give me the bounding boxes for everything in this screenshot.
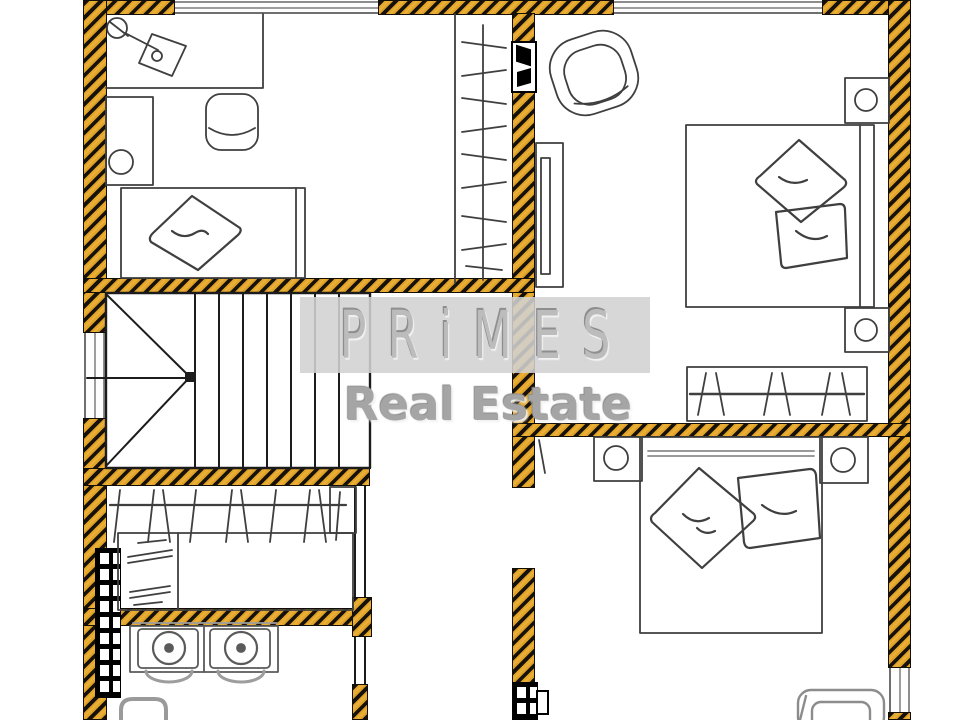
wardrobe-icon <box>118 533 353 610</box>
watermark-band: PRiMES <box>300 297 650 373</box>
bathtub-corner-icon <box>121 699 166 720</box>
desk-lamp-icon <box>107 18 186 76</box>
hanging-rail-icon <box>687 367 867 421</box>
pillow-icon <box>756 140 847 268</box>
nightstand-lamp-icon <box>845 78 889 123</box>
watermark-tagline: Real Estate <box>318 378 658 431</box>
hanging-rail-icon <box>455 14 506 283</box>
armchair-icon <box>798 690 884 720</box>
nightstand-lamp-icon <box>594 437 642 481</box>
pillow-icon <box>150 196 241 270</box>
watermark-brand: PRiMES <box>318 297 631 374</box>
single-bed-icon <box>121 188 305 278</box>
stool-icon <box>109 150 133 174</box>
door-leaf-icon <box>539 440 545 473</box>
nightstand-lamp-icon <box>845 308 889 352</box>
pillow-icon <box>651 468 820 568</box>
office-chair-icon <box>206 94 258 150</box>
armchair-icon <box>542 23 646 123</box>
desk-icon <box>106 14 263 185</box>
floor-plan-canvas: PRiMES Real Estate <box>0 0 960 720</box>
double-sink-vanity-icon <box>130 623 278 682</box>
wardrobe-icon <box>536 143 563 287</box>
nightstand-lamp-icon <box>820 437 868 483</box>
